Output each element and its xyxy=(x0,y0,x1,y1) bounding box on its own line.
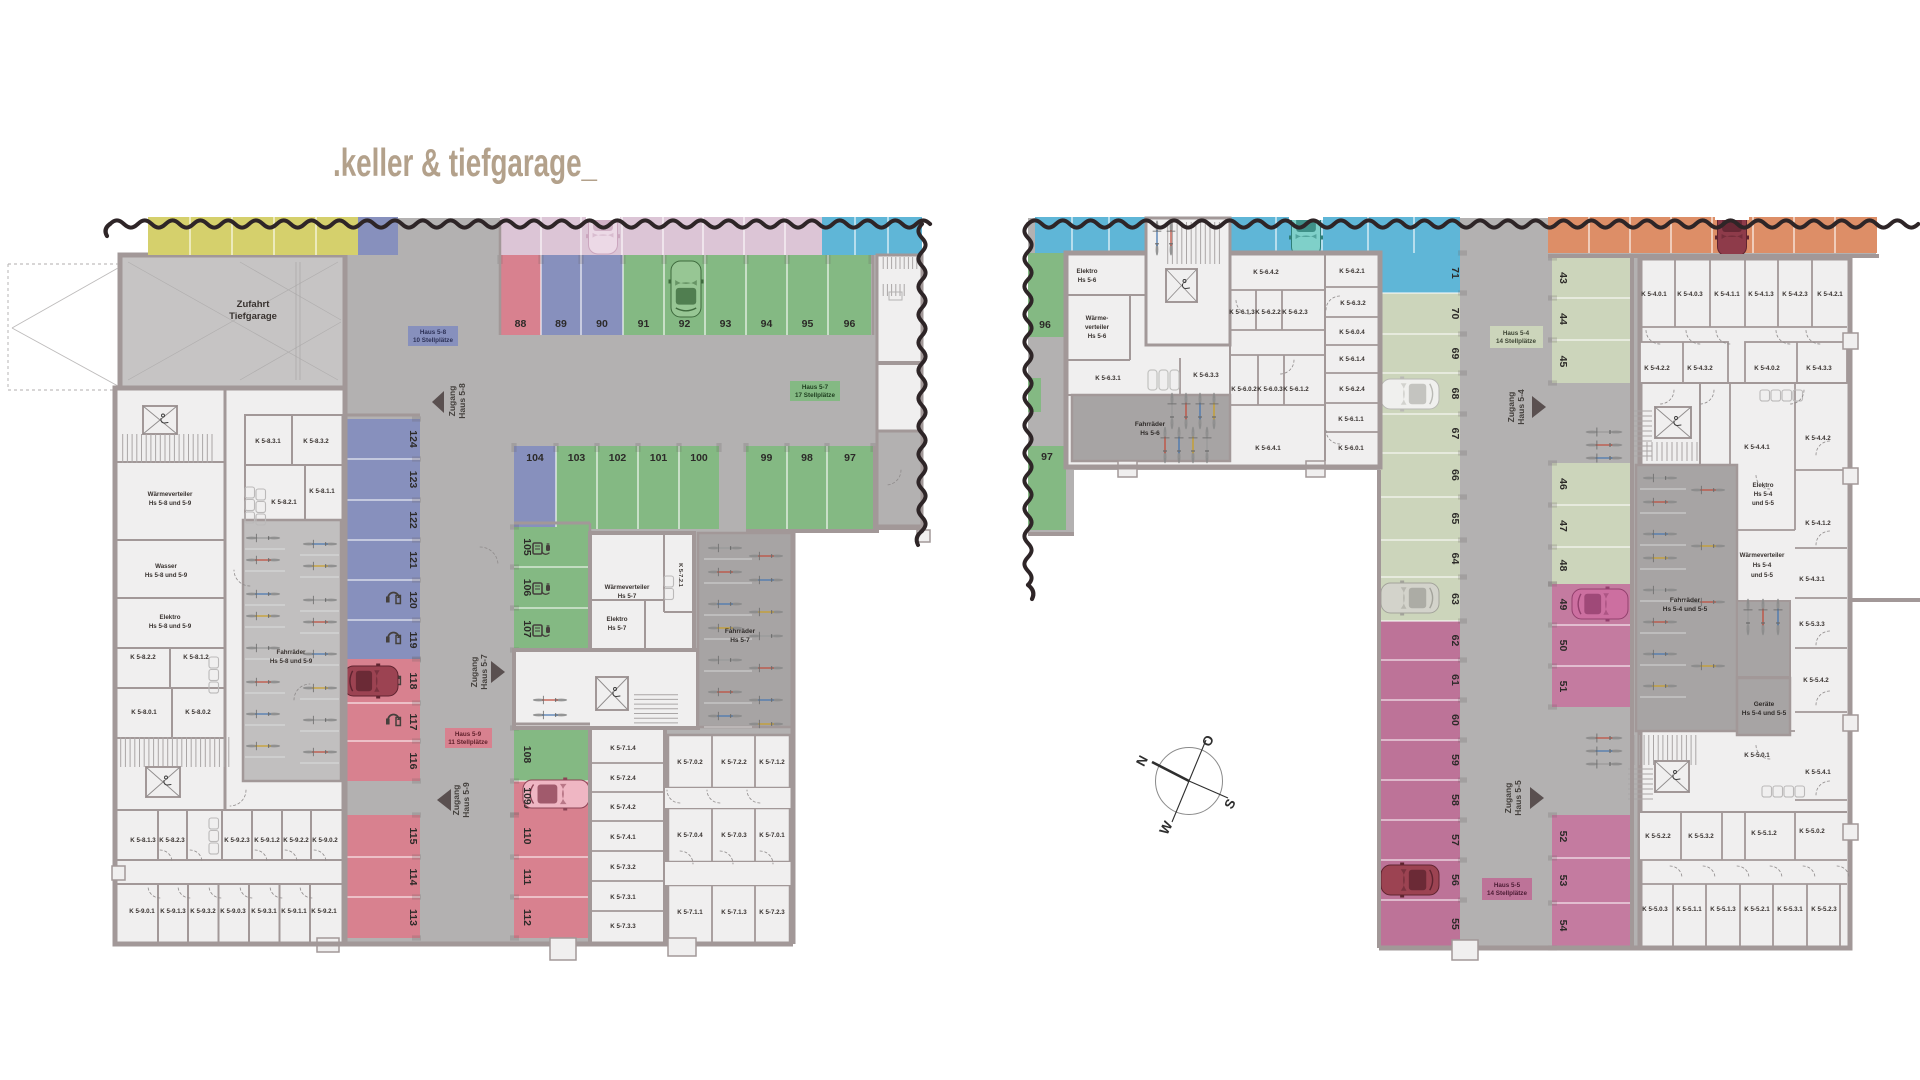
svg-text:50: 50 xyxy=(1557,640,1569,652)
svg-text:K 5-8.1.1: K 5-8.1.1 xyxy=(309,488,335,495)
svg-text:104: 104 xyxy=(526,452,544,464)
svg-text:K 5-6.2.4: K 5-6.2.4 xyxy=(1339,386,1365,393)
svg-text:K 5-8.2.3: K 5-8.2.3 xyxy=(159,837,185,844)
svg-text:K 5-6.1.4: K 5-6.1.4 xyxy=(1339,356,1365,363)
svg-text:98: 98 xyxy=(801,452,813,464)
svg-text:Fahrräder: Fahrräder xyxy=(1135,421,1166,428)
svg-text:119: 119 xyxy=(407,632,419,649)
svg-text:117: 117 xyxy=(407,714,419,731)
svg-text:K 5-6.2.1: K 5-6.2.1 xyxy=(1339,268,1365,275)
svg-text:K 5-5.0.3: K 5-5.0.3 xyxy=(1642,906,1668,913)
svg-text:K 5-9.2.3: K 5-9.2.3 xyxy=(224,837,250,844)
svg-text:101: 101 xyxy=(650,452,668,464)
svg-text:52: 52 xyxy=(1557,831,1569,843)
svg-text:Haus 5-9: Haus 5-9 xyxy=(461,782,471,818)
svg-text:61: 61 xyxy=(1449,674,1461,686)
svg-text:97: 97 xyxy=(1041,451,1053,463)
svg-text:51: 51 xyxy=(1557,681,1569,693)
svg-text:K 5-8.0.2: K 5-8.0.2 xyxy=(185,709,211,716)
svg-text:103: 103 xyxy=(568,452,586,464)
svg-text:Haus 5-7: Haus 5-7 xyxy=(479,654,489,690)
svg-text:K 5-8.1.3: K 5-8.1.3 xyxy=(130,837,156,844)
svg-text:54: 54 xyxy=(1557,920,1569,932)
svg-text:49: 49 xyxy=(1557,599,1569,611)
svg-text:121: 121 xyxy=(407,551,419,569)
svg-text:57: 57 xyxy=(1449,834,1461,846)
svg-text:K 5-8.2.1: K 5-8.2.1 xyxy=(271,499,297,506)
svg-text:Hs 5-8 und 5-9: Hs 5-8 und 5-9 xyxy=(149,500,192,507)
svg-text:K 5-8.2.2: K 5-8.2.2 xyxy=(130,654,156,661)
svg-text:69: 69 xyxy=(1449,348,1461,360)
svg-text:Hs 5-6: Hs 5-6 xyxy=(1078,277,1097,284)
svg-text:K 5-9.3.2: K 5-9.3.2 xyxy=(190,908,216,915)
svg-text:106: 106 xyxy=(521,579,533,597)
svg-text:108: 108 xyxy=(521,746,533,764)
svg-text:Haus 5-4: Haus 5-4 xyxy=(1503,330,1530,337)
svg-text:Hs 5-7: Hs 5-7 xyxy=(618,593,637,600)
svg-text:K 5-5.1.3: K 5-5.1.3 xyxy=(1710,906,1736,913)
svg-text:107: 107 xyxy=(521,620,533,638)
svg-text:K 5-7.3.1: K 5-7.3.1 xyxy=(610,894,636,901)
svg-text:120: 120 xyxy=(407,591,419,609)
svg-text:Zugang: Zugang xyxy=(447,386,457,417)
svg-text:56: 56 xyxy=(1449,874,1461,886)
svg-text:62: 62 xyxy=(1449,635,1461,647)
svg-text:K 5-9.2.2: K 5-9.2.2 xyxy=(283,837,309,844)
svg-text:K 5-7.2.4: K 5-7.2.4 xyxy=(610,775,636,782)
svg-text:93: 93 xyxy=(720,318,732,330)
svg-text:110: 110 xyxy=(521,828,533,845)
svg-text:Elektro: Elektro xyxy=(1753,482,1774,489)
svg-text:K 5-9.0.3: K 5-9.0.3 xyxy=(220,908,246,915)
svg-text:K 5-6.3.1: K 5-6.3.1 xyxy=(1095,375,1121,382)
svg-text:K 5-6.1.1: K 5-6.1.1 xyxy=(1338,416,1364,423)
svg-text:63: 63 xyxy=(1449,593,1461,605)
svg-text:Wärme-: Wärme- xyxy=(1086,315,1109,322)
svg-text:K 5-9.3.1: K 5-9.3.1 xyxy=(251,908,277,915)
svg-text:K 5-7.2.1: K 5-7.2.1 xyxy=(677,563,683,588)
svg-text:44: 44 xyxy=(1557,313,1569,325)
svg-text:K 5-4.2.1: K 5-4.2.1 xyxy=(1817,291,1843,298)
svg-text:Fahrräder: Fahrräder xyxy=(277,649,306,656)
svg-text:91: 91 xyxy=(638,318,650,330)
svg-text:Haus 5-5: Haus 5-5 xyxy=(1494,882,1521,889)
svg-text:Hs 5-7: Hs 5-7 xyxy=(730,637,750,644)
svg-text:115: 115 xyxy=(407,828,419,845)
svg-text:Hs 5-8 und 5-9: Hs 5-8 und 5-9 xyxy=(149,623,192,630)
svg-text:K 5-5.4.2: K 5-5.4.2 xyxy=(1803,677,1829,684)
svg-text:K 5-6.3.2: K 5-6.3.2 xyxy=(1340,300,1366,307)
svg-text:95: 95 xyxy=(802,318,814,330)
svg-text:K 5-4.3.2: K 5-4.3.2 xyxy=(1687,365,1713,372)
svg-text:K 5-5.3.2: K 5-5.3.2 xyxy=(1688,833,1714,840)
svg-text:68: 68 xyxy=(1449,388,1461,400)
svg-text:Elektro: Elektro xyxy=(607,616,628,623)
svg-text:K 5-8.3.2: K 5-8.3.2 xyxy=(303,438,329,445)
svg-text:K 5-6.0.2: K 5-6.0.2 xyxy=(1231,386,1257,393)
svg-text:K 5-4.3.1: K 5-4.3.1 xyxy=(1799,576,1825,583)
svg-text:K 5-7.3.2: K 5-7.3.2 xyxy=(610,864,636,871)
svg-text:66: 66 xyxy=(1449,469,1461,481)
svg-text:53: 53 xyxy=(1557,875,1569,887)
svg-text:124: 124 xyxy=(407,430,419,448)
svg-text:K 5-9.0.2: K 5-9.0.2 xyxy=(312,837,338,844)
svg-text:Hs 5-4 und 5-5: Hs 5-4 und 5-5 xyxy=(1663,606,1708,613)
svg-text:14 Stellplätze: 14 Stellplätze xyxy=(1496,338,1536,345)
svg-text:10 Stellplätze: 10 Stellplätze xyxy=(413,337,453,344)
svg-text:47: 47 xyxy=(1557,520,1569,532)
svg-text:Wärmeverteiler: Wärmeverteiler xyxy=(1740,552,1785,559)
svg-text:48: 48 xyxy=(1557,560,1569,572)
svg-text:116: 116 xyxy=(407,753,419,770)
svg-text:K 5-7.0.4: K 5-7.0.4 xyxy=(677,832,703,839)
svg-text:und 5-5: und 5-5 xyxy=(1752,500,1775,507)
svg-text:90: 90 xyxy=(596,318,608,330)
svg-text:K 5-6.1.3: K 5-6.1.3 xyxy=(1229,309,1255,316)
svg-text:K 5-6.4.2: K 5-6.4.2 xyxy=(1253,269,1279,276)
svg-text:K 5-7.4.1: K 5-7.4.1 xyxy=(610,834,636,841)
svg-text:K 5-4.2.2: K 5-4.2.2 xyxy=(1644,365,1670,372)
svg-text:71: 71 xyxy=(1449,267,1461,279)
svg-text:58: 58 xyxy=(1449,794,1461,806)
svg-text:K 5-8.1.2: K 5-8.1.2 xyxy=(183,654,209,661)
svg-text:K 5-7.2.2: K 5-7.2.2 xyxy=(721,759,747,766)
svg-text:K 5-4.1.3: K 5-4.1.3 xyxy=(1748,291,1774,298)
svg-text:K 5-4.0.1: K 5-4.0.1 xyxy=(1641,291,1667,298)
svg-text:122: 122 xyxy=(407,511,419,529)
svg-text:K 5-7.0.3: K 5-7.0.3 xyxy=(721,832,747,839)
svg-text:100: 100 xyxy=(690,452,708,464)
svg-text:und 5-5: und 5-5 xyxy=(1751,572,1774,579)
svg-text:K 5-9.1.2: K 5-9.1.2 xyxy=(254,837,280,844)
svg-text:K 5-6.0.4: K 5-6.0.4 xyxy=(1339,329,1365,336)
svg-text:verteiler: verteiler xyxy=(1085,324,1110,331)
svg-text:Haus 5-9: Haus 5-9 xyxy=(455,731,482,738)
svg-text:Hs 5-4 und 5-5: Hs 5-4 und 5-5 xyxy=(1742,710,1787,717)
svg-text:Zugang: Zugang xyxy=(1503,783,1513,814)
svg-text:K 5-5.1.2: K 5-5.1.2 xyxy=(1751,830,1777,837)
svg-text:67: 67 xyxy=(1449,428,1461,440)
svg-text:Hs 5-7: Hs 5-7 xyxy=(608,625,627,632)
svg-text:99: 99 xyxy=(761,452,773,464)
svg-text:Geräte: Geräte xyxy=(1754,701,1775,708)
svg-text:17 Stellplätze: 17 Stellplätze xyxy=(795,392,835,399)
svg-text:K 5-5.2.3: K 5-5.2.3 xyxy=(1811,906,1837,913)
svg-text:K 5-8.0.1: K 5-8.0.1 xyxy=(131,709,157,716)
svg-text:K 5-5.0.2: K 5-5.0.2 xyxy=(1799,828,1825,835)
svg-text:97: 97 xyxy=(844,452,856,464)
svg-text:Tiefgarage: Tiefgarage xyxy=(229,311,277,322)
svg-text:118: 118 xyxy=(407,673,419,690)
svg-text:K 5-6.2.2: K 5-6.2.2 xyxy=(1255,309,1281,316)
svg-text:Haus 5-7: Haus 5-7 xyxy=(802,384,829,391)
svg-text:Zugang: Zugang xyxy=(451,785,461,816)
svg-text:K 5-5.2.1: K 5-5.2.1 xyxy=(1744,906,1770,913)
svg-text:92: 92 xyxy=(679,318,691,330)
svg-text:105: 105 xyxy=(521,538,533,556)
svg-text:K 5-8.3.1: K 5-8.3.1 xyxy=(255,438,281,445)
svg-text:123: 123 xyxy=(407,471,419,489)
svg-text:K 5-6.2.3: K 5-6.2.3 xyxy=(1282,309,1308,316)
svg-text:88: 88 xyxy=(515,318,527,330)
svg-text:65: 65 xyxy=(1449,513,1461,525)
svg-text:K 5-5.4.1: K 5-5.4.1 xyxy=(1805,769,1831,776)
svg-text:Hs 5-4: Hs 5-4 xyxy=(1754,491,1773,498)
svg-text:11 Stellplätze: 11 Stellplätze xyxy=(448,739,488,746)
svg-text:Hs 5-8 und 5-9: Hs 5-8 und 5-9 xyxy=(145,572,188,579)
svg-text:Haus 5-4: Haus 5-4 xyxy=(1516,389,1526,425)
svg-text:K 5-4.1.1: K 5-4.1.1 xyxy=(1714,291,1740,298)
svg-text:K 5-4.0.3: K 5-4.0.3 xyxy=(1677,291,1703,298)
svg-text:K 5-4.0.2: K 5-4.0.2 xyxy=(1754,365,1780,372)
svg-text:113: 113 xyxy=(407,909,419,926)
svg-text:60: 60 xyxy=(1449,714,1461,726)
svg-text:109: 109 xyxy=(521,787,533,805)
svg-text:K 5-7.1.4: K 5-7.1.4 xyxy=(610,745,636,752)
svg-text:96: 96 xyxy=(1039,319,1051,331)
svg-text:K 5-7.1.1: K 5-7.1.1 xyxy=(677,909,703,916)
svg-text:46: 46 xyxy=(1557,478,1569,490)
svg-text:Hs 5-6: Hs 5-6 xyxy=(1088,333,1107,340)
svg-text:94: 94 xyxy=(761,318,773,330)
svg-text:K 5-9.2.1: K 5-9.2.1 xyxy=(311,908,337,915)
svg-text:K 5-4.1.2: K 5-4.1.2 xyxy=(1805,520,1831,527)
svg-text:Wasser: Wasser xyxy=(155,563,177,570)
svg-text:K 5-6.0.1: K 5-6.0.1 xyxy=(1338,445,1364,452)
svg-text:K 5-5.0.1: K 5-5.0.1 xyxy=(1744,752,1770,759)
svg-text:K 5-7.1.3: K 5-7.1.3 xyxy=(721,909,747,916)
svg-text:Hs 5-8 und 5-9: Hs 5-8 und 5-9 xyxy=(270,658,313,665)
svg-text:Elektro: Elektro xyxy=(1077,268,1098,275)
svg-text:K 5-7.4.2: K 5-7.4.2 xyxy=(610,804,636,811)
svg-text:Zufahrt: Zufahrt xyxy=(237,299,271,310)
svg-text:102: 102 xyxy=(609,452,627,464)
svg-text:K 5-6.0.3: K 5-6.0.3 xyxy=(1257,386,1283,393)
svg-text:Fahrräder: Fahrräder xyxy=(725,628,756,635)
svg-text:64: 64 xyxy=(1449,553,1461,565)
svg-text:K 5-4.3.3: K 5-4.3.3 xyxy=(1806,365,1832,372)
svg-text:K 5-9.0.1: K 5-9.0.1 xyxy=(129,908,155,915)
svg-text:89: 89 xyxy=(555,318,567,330)
svg-text:Hs 5-4: Hs 5-4 xyxy=(1753,562,1772,569)
svg-text:K 5-6.4.1: K 5-6.4.1 xyxy=(1255,445,1281,452)
svg-text:K 5-9.1.3: K 5-9.1.3 xyxy=(160,908,186,915)
svg-text:K 5-4.4.1: K 5-4.4.1 xyxy=(1744,444,1770,451)
svg-text:Fahrräder: Fahrräder xyxy=(1670,597,1701,604)
svg-text:Hs 5-6: Hs 5-6 xyxy=(1140,430,1160,437)
svg-text:Haus 5-8: Haus 5-8 xyxy=(457,383,467,419)
svg-text:114: 114 xyxy=(407,869,419,886)
svg-text:K 5-7.0.2: K 5-7.0.2 xyxy=(677,759,703,766)
svg-text:Wärmeverteiler: Wärmeverteiler xyxy=(605,584,650,591)
svg-text:K 5-7.0.1: K 5-7.0.1 xyxy=(759,832,785,839)
svg-text:55: 55 xyxy=(1449,918,1461,930)
svg-text:K 5-5.1.1: K 5-5.1.1 xyxy=(1676,906,1702,913)
svg-text:K 5-6.3.3: K 5-6.3.3 xyxy=(1193,372,1219,379)
svg-text:112: 112 xyxy=(521,909,533,926)
svg-text:K 5-4.2.3: K 5-4.2.3 xyxy=(1782,291,1808,298)
svg-text:.keller & tiefgarage_: .keller & tiefgarage_ xyxy=(333,142,597,185)
svg-text:Elektro: Elektro xyxy=(160,614,181,621)
svg-text:Haus 5-5: Haus 5-5 xyxy=(1513,780,1523,816)
svg-text:Zugang: Zugang xyxy=(1506,392,1516,423)
svg-text:96: 96 xyxy=(844,318,856,330)
svg-text:45: 45 xyxy=(1557,356,1569,368)
svg-text:70: 70 xyxy=(1449,308,1461,320)
svg-text:43: 43 xyxy=(1557,272,1569,284)
svg-text:K 5-5.2.2: K 5-5.2.2 xyxy=(1645,833,1671,840)
svg-text:K 5-5.3.3: K 5-5.3.3 xyxy=(1799,621,1825,628)
svg-text:K 5-7.2.3: K 5-7.2.3 xyxy=(759,909,785,916)
svg-text:K 5-7.3.3: K 5-7.3.3 xyxy=(610,923,636,930)
svg-text:Haus 5-8: Haus 5-8 xyxy=(420,329,447,336)
svg-text:14 Stellplätze: 14 Stellplätze xyxy=(1487,890,1527,897)
svg-text:59: 59 xyxy=(1449,754,1461,766)
svg-text:Wärmeverteiler: Wärmeverteiler xyxy=(148,491,193,498)
svg-text:111: 111 xyxy=(521,869,533,886)
svg-text:K 5-7.1.2: K 5-7.1.2 xyxy=(759,759,785,766)
svg-text:K 5-5.3.1: K 5-5.3.1 xyxy=(1777,906,1803,913)
svg-text:K 5-6.1.2: K 5-6.1.2 xyxy=(1283,386,1309,393)
svg-text:Zugang: Zugang xyxy=(469,657,479,688)
svg-text:K 5-9.1.1: K 5-9.1.1 xyxy=(281,908,307,915)
